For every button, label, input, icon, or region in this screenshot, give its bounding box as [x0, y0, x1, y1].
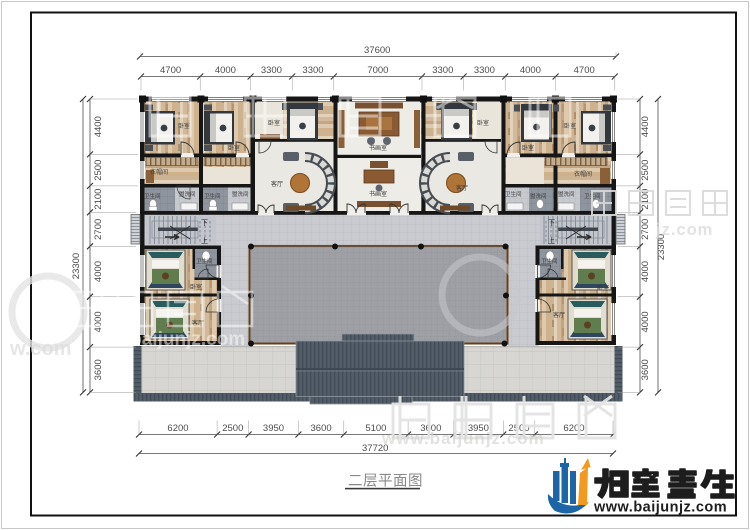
svg-text:4000: 4000 — [520, 65, 541, 76]
svg-text:4000: 4000 — [215, 65, 236, 76]
svg-text:书画室: 书画室 — [369, 190, 387, 198]
svg-text:盥洗间: 盥洗间 — [530, 192, 547, 200]
svg-text:2500: 2500 — [93, 160, 104, 181]
svg-text:卫生间: 卫生间 — [204, 192, 221, 200]
svg-text:卧室: 卧室 — [597, 284, 609, 292]
svg-text:3300: 3300 — [302, 65, 323, 76]
svg-text:盥洗间: 盥洗间 — [558, 190, 575, 198]
svg-text:衣帽间: 衣帽间 — [150, 168, 168, 176]
svg-text:23300: 23300 — [71, 253, 82, 279]
svg-text:3300: 3300 — [432, 65, 453, 76]
svg-text:2700: 2700 — [640, 219, 651, 240]
svg-text:2500: 2500 — [222, 423, 243, 434]
svg-text:3600: 3600 — [311, 423, 332, 434]
svg-text:4700: 4700 — [574, 65, 595, 76]
svg-text:3600: 3600 — [640, 359, 651, 380]
svg-text:客厅: 客厅 — [553, 311, 565, 319]
svg-text:上: 上 — [548, 236, 555, 245]
svg-text:3950: 3950 — [263, 423, 284, 434]
svg-text:卧室: 卧室 — [522, 144, 534, 152]
svg-text:盥洗间: 盥洗间 — [179, 190, 196, 198]
svg-text:卧室: 卧室 — [268, 119, 280, 127]
svg-text:4000: 4000 — [640, 311, 651, 332]
svg-text:客厅: 客厅 — [456, 184, 468, 192]
svg-text:4000: 4000 — [93, 261, 104, 282]
svg-text:3300: 3300 — [474, 65, 495, 76]
svg-text:卫生间: 卫生间 — [196, 257, 213, 265]
svg-text:4000: 4000 — [640, 261, 651, 282]
svg-text:2100: 2100 — [93, 189, 104, 210]
svg-text:www.baijunjz.com: www.baijunjz.com — [381, 429, 545, 448]
svg-text:客厅: 客厅 — [271, 180, 283, 188]
svg-text:6200: 6200 — [563, 423, 584, 434]
svg-text:7000: 7000 — [367, 65, 388, 76]
svg-text:jz.com: jz.com — [655, 221, 713, 239]
svg-text:卧室: 卧室 — [178, 122, 190, 130]
svg-text:w.com: w.com — [9, 338, 72, 360]
svg-text:卫生间: 卫生间 — [505, 190, 522, 198]
svg-text:二层平面图: 二层平面图 — [348, 474, 423, 490]
svg-text:卧室: 卧室 — [228, 144, 240, 152]
svg-text:书画室: 书画室 — [369, 144, 387, 152]
svg-text:上: 上 — [201, 236, 208, 245]
svg-text:卫生间: 卫生间 — [541, 257, 558, 265]
svg-text:3600: 3600 — [93, 359, 104, 380]
svg-text:www.baijunjz.com: www.baijunjz.com — [593, 500, 727, 516]
svg-text:2500: 2500 — [640, 160, 651, 181]
svg-text:4700: 4700 — [160, 65, 181, 76]
svg-text:37600: 37600 — [364, 45, 390, 56]
svg-text:下: 下 — [201, 219, 208, 227]
svg-text:卧室: 卧室 — [190, 283, 202, 291]
svg-text:2700: 2700 — [93, 219, 104, 240]
svg-text:4400: 4400 — [640, 116, 651, 137]
svg-text:卧室: 卧室 — [477, 119, 489, 127]
svg-text:下: 下 — [548, 219, 555, 227]
svg-text:ww.baijunjz.com: ww.baijunjz.com — [95, 329, 245, 350]
svg-text:3300: 3300 — [261, 65, 282, 76]
svg-text:4400: 4400 — [93, 116, 104, 137]
svg-text:衣帽间: 衣帽间 — [574, 170, 592, 178]
svg-text:卫生间: 卫生间 — [144, 192, 161, 200]
svg-text:盥洗间: 盥洗间 — [232, 190, 249, 198]
svg-text:6200: 6200 — [167, 423, 188, 434]
